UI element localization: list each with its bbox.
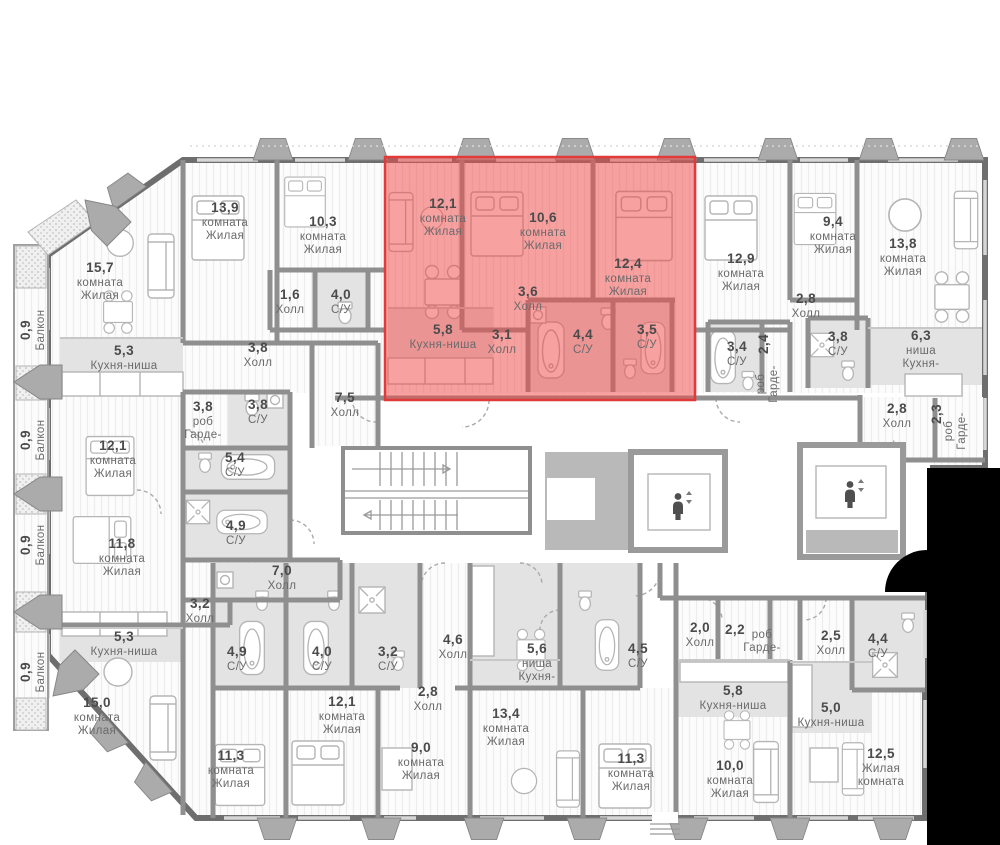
label-bath-3-4: 3,4С/У (727, 339, 747, 368)
svg-text:С/У: С/У (226, 535, 246, 547)
svg-text:12,1: 12,1 (328, 694, 356, 709)
svg-text:комната: комната (300, 231, 346, 243)
label-bath-4-5: 4,5С/У (628, 641, 648, 670)
svg-text:11,3: 11,3 (217, 748, 244, 763)
svg-text:Жилая: Жилая (94, 468, 132, 480)
svg-text:Жилая: Жилая (814, 244, 852, 256)
svg-text:комната: комната (90, 455, 136, 467)
svg-text:2,5: 2,5 (821, 628, 841, 643)
svg-text:Гарде-: Гарде- (768, 365, 780, 402)
svg-text:С/У: С/У (248, 414, 268, 426)
svg-text:3,5: 3,5 (637, 322, 657, 337)
svg-text:Жилая: Жилая (609, 286, 647, 298)
svg-text:Жилая: Жилая (884, 266, 922, 278)
svg-text:2,8: 2,8 (796, 291, 816, 306)
svg-text:Балкон: Балкон (35, 310, 47, 351)
svg-text:5,3: 5,3 (114, 629, 134, 644)
svg-text:С/У: С/У (312, 661, 332, 673)
svg-text:Гарде-: Гарде- (956, 412, 968, 449)
svg-text:10,6: 10,6 (529, 210, 557, 225)
svg-text:комната: комната (202, 217, 248, 229)
svg-text:Холл: Холл (514, 301, 543, 313)
corridor-right (660, 563, 925, 598)
svg-text:С/У: С/У (828, 346, 848, 358)
svg-text:5,0: 5,0 (821, 700, 841, 715)
svg-text:Холл: Холл (817, 645, 846, 657)
svg-text:2,4: 2,4 (756, 334, 771, 354)
svg-text:комната: комната (718, 268, 764, 280)
svg-text:С/У: С/У (868, 648, 888, 660)
svg-text:роб: роб (193, 416, 214, 428)
svg-text:С/У: С/У (573, 344, 593, 356)
svg-text:Кухня-ниша: Кухня-ниша (90, 646, 157, 658)
svg-text:13,8: 13,8 (889, 236, 917, 251)
svg-text:12,4: 12,4 (614, 256, 642, 271)
svg-text:Жилая: Жилая (402, 770, 440, 782)
svg-text:12,1: 12,1 (99, 438, 127, 453)
svg-text:Жилая: Жилая (424, 226, 462, 238)
svg-text:Холл: Холл (268, 580, 297, 592)
svg-text:Холл: Холл (686, 637, 715, 649)
svg-text:3,8: 3,8 (248, 397, 268, 412)
svg-text:9,4: 9,4 (823, 214, 843, 229)
staircase (343, 448, 530, 533)
svg-text:2,3: 2,3 (929, 404, 944, 424)
svg-text:2,2: 2,2 (725, 622, 745, 637)
svg-text:10,0: 10,0 (716, 758, 744, 773)
svg-text:комната: комната (707, 775, 753, 787)
svg-text:Кухня-: Кухня- (902, 358, 939, 370)
svg-text:С/У: С/У (727, 356, 747, 368)
svg-text:Жилая: Жилая (612, 781, 650, 793)
svg-text:Холл: Холл (276, 304, 305, 316)
svg-text:Холл: Холл (883, 418, 912, 430)
svg-text:Жилая: Жилая (212, 778, 250, 790)
svg-text:13,4: 13,4 (492, 706, 520, 721)
svg-text:роб: роб (752, 629, 773, 641)
svg-text:комната: комната (74, 712, 120, 724)
label-bath-4-9-left: 4,9С/У (226, 518, 246, 547)
svg-text:Жилая: Жилая (103, 566, 141, 578)
svg-text:комната: комната (77, 277, 123, 289)
svg-text:Холл: Холл (244, 357, 273, 369)
svg-text:13,9: 13,9 (211, 200, 239, 215)
svg-text:Холл: Холл (331, 407, 360, 419)
svg-text:Кухня-: Кухня- (518, 671, 555, 683)
label-wardrobe-2-3-area: 2,3 (929, 404, 944, 424)
svg-text:2,0: 2,0 (690, 620, 710, 635)
svg-text:комната: комната (483, 723, 529, 735)
svg-text:3,2: 3,2 (190, 596, 210, 611)
svg-text:С/У: С/У (628, 658, 648, 670)
svg-text:0,9: 0,9 (18, 662, 33, 682)
svg-text:Жилая: Жилая (862, 763, 900, 775)
svg-text:комната: комната (608, 768, 654, 780)
svg-text:12,1: 12,1 (429, 196, 457, 211)
label-bath-3-2: 3,2С/У (378, 644, 398, 673)
svg-text:С/У: С/У (637, 339, 657, 351)
svg-text:комната: комната (880, 253, 926, 265)
label-bath-4-0-bottom: 4,0С/У (312, 644, 332, 673)
floor-plan: 13,9комнатаЖилая10,3комнатаЖилая15,7комн… (0, 0, 1000, 845)
svg-text:3,6: 3,6 (518, 284, 538, 299)
svg-text:4,0: 4,0 (312, 644, 332, 659)
svg-text:3,4: 3,4 (727, 339, 747, 354)
svg-text:Кухня-ниша: Кухня-ниша (409, 339, 476, 351)
svg-text:5,8: 5,8 (433, 322, 453, 337)
svg-text:комната: комната (208, 765, 254, 777)
svg-text:0,9: 0,9 (18, 320, 33, 340)
svg-text:Жилая: Жилая (78, 725, 116, 737)
svg-text:10,3: 10,3 (309, 214, 337, 229)
label-bath-3-5: 3,5С/У (637, 322, 657, 351)
label-bath-4-4-bottom: 4,4С/У (868, 631, 888, 660)
svg-text:комната: комната (858, 776, 904, 788)
label-bath-3-8-left: 3,8С/У (248, 397, 268, 426)
svg-text:С/У: С/У (331, 304, 351, 316)
svg-text:Холл: Холл (186, 613, 215, 625)
svg-text:4,9: 4,9 (226, 518, 246, 533)
svg-text:4,6: 4,6 (443, 632, 463, 647)
svg-text:4,0: 4,0 (331, 287, 351, 302)
svg-text:комната: комната (605, 273, 651, 285)
svg-text:Жилая: Жилая (487, 736, 525, 748)
floor-plan-page: 13,9комнатаЖилая10,3комнатаЖилая15,7комн… (0, 0, 1000, 845)
svg-text:С/У: С/У (227, 661, 247, 673)
label-bath-4-4-red: 4,4С/У (573, 327, 593, 356)
svg-text:Холл: Холл (792, 308, 821, 320)
svg-text:Гарде-: Гарде- (743, 642, 780, 654)
svg-text:6,3: 6,3 (911, 328, 931, 343)
svg-text:0,9: 0,9 (18, 430, 33, 450)
svg-text:12,9: 12,9 (727, 251, 755, 266)
svg-text:Жилая: Жилая (711, 788, 749, 800)
svg-text:15,0: 15,0 (83, 695, 111, 710)
label-wardrobe-2-2-area: 2,2 (725, 622, 745, 637)
svg-text:комната: комната (319, 711, 365, 723)
svg-text:роб: роб (755, 374, 767, 395)
label-bath-3-8-right: 3,8С/У (828, 329, 848, 358)
svg-text:комната: комната (520, 227, 566, 239)
svg-text:Жилая: Жилая (206, 230, 244, 242)
svg-text:С/У: С/У (378, 661, 398, 673)
svg-text:Жилая: Жилая (304, 244, 342, 256)
label-bath-4-9-bottom: 4,9С/У (227, 644, 247, 673)
svg-text:3,8: 3,8 (828, 329, 848, 344)
svg-text:роб: роб (943, 421, 955, 442)
svg-text:12,5: 12,5 (867, 746, 895, 761)
svg-text:0,9: 0,9 (18, 535, 33, 555)
svg-text:Холл: Холл (488, 344, 517, 356)
svg-text:Балкон: Балкон (35, 652, 47, 693)
svg-text:3,8: 3,8 (193, 399, 213, 414)
svg-text:11,8: 11,8 (108, 536, 135, 551)
svg-text:Холл: Холл (414, 701, 443, 713)
svg-text:Жилая: Жилая (323, 724, 361, 736)
svg-text:Балкон: Балкон (35, 420, 47, 461)
svg-text:5,6: 5,6 (527, 641, 547, 656)
svg-text:3,2: 3,2 (378, 644, 398, 659)
svg-text:2,8: 2,8 (418, 684, 438, 699)
svg-text:4,4: 4,4 (573, 327, 593, 342)
svg-text:4,9: 4,9 (227, 644, 247, 659)
svg-text:5,4: 5,4 (225, 450, 245, 465)
svg-text:4,4: 4,4 (868, 631, 888, 646)
svg-text:ниша: ниша (522, 658, 552, 670)
svg-text:Жилая: Жилая (81, 290, 119, 302)
svg-text:5,3: 5,3 (114, 343, 134, 358)
label-bath-4-0-top: 4,0С/У (331, 287, 351, 316)
svg-text:комната: комната (810, 231, 856, 243)
svg-text:Холл: Холл (439, 649, 468, 661)
svg-text:Гарде-: Гарде- (184, 429, 221, 441)
svg-text:Балкон: Балкон (35, 525, 47, 566)
svg-text:3,1: 3,1 (492, 327, 512, 342)
svg-text:Кухня-ниша: Кухня-ниша (90, 360, 157, 372)
svg-text:3,8: 3,8 (248, 340, 268, 355)
svg-text:11,3: 11,3 (617, 751, 644, 766)
svg-text:комната: комната (420, 213, 466, 225)
svg-text:комната: комната (99, 553, 145, 565)
svg-text:С/У: С/У (225, 467, 245, 479)
svg-text:комната: комната (398, 757, 444, 769)
svg-text:Жилая: Жилая (722, 281, 760, 293)
svg-text:Кухня-ниша: Кухня-ниша (797, 717, 864, 729)
svg-text:15,7: 15,7 (86, 260, 114, 275)
svg-text:Жилая: Жилая (524, 240, 562, 252)
label-bath-5-4: 5,4С/У (225, 450, 245, 479)
svg-text:2,8: 2,8 (887, 401, 907, 416)
svg-text:9,0: 9,0 (411, 740, 431, 755)
svg-text:Кухня-ниша: Кухня-ниша (699, 700, 766, 712)
svg-text:4,5: 4,5 (628, 641, 648, 656)
svg-text:7,5: 7,5 (335, 390, 355, 405)
svg-text:1,6: 1,6 (280, 287, 300, 302)
svg-text:7,0: 7,0 (272, 563, 292, 578)
svg-text:ниша: ниша (906, 345, 936, 357)
label-wardrobe-2-4-area: 2,4 (756, 334, 771, 354)
svg-text:5,8: 5,8 (723, 683, 743, 698)
